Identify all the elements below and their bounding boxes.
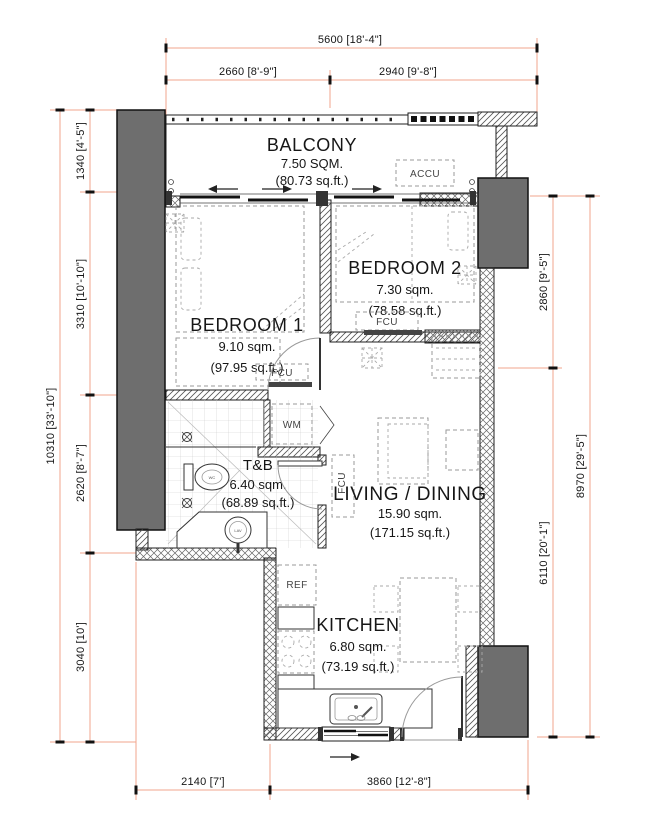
bedroom-1-bed [176, 206, 304, 332]
bedroom-2-area-sqft: (78.58 sq.ft.) [369, 303, 442, 318]
ceiling-unit-icon [362, 348, 382, 368]
bedroom-1: BEDROOM 1 9.10 sqm. (97.95 sq.ft.) FCU [166, 206, 320, 390]
bedroom-2-area-sqm: 7.30 sqm. [376, 282, 433, 297]
tb-area-sqm: 6.40 sqm. [229, 477, 286, 492]
balcony: ACCU BALCONY 7.50 SQM. (80.73 sq.ft.) [166, 113, 478, 207]
bedroom-partition-wall [320, 200, 331, 333]
kitchen-counter-upper [278, 607, 314, 629]
dim-right-2: 6110 [20'-1"] [538, 521, 550, 584]
slide-arrow-right-2 [352, 185, 382, 193]
fcu-bedroom-2-label: FCU [376, 317, 398, 328]
dim-top-right: 2940 [9'-8"] [379, 66, 437, 78]
dim-right-overall: 8970 [29'-5"] [575, 434, 587, 498]
living-title: LIVING / DINING [333, 484, 487, 505]
kitchen-title: KITCHEN [316, 615, 399, 635]
floor-plan-drawing: 5600 [18'-4"] 2660 [8'-9"] 2940 [9'-8"] … [0, 0, 664, 818]
balcony-area-sqft: (80.73 sq.ft.) [276, 173, 349, 188]
dim-left-4: 3040 [10'] [75, 622, 87, 672]
wc-label: WC [209, 475, 216, 480]
column-top-right [478, 178, 528, 268]
wm-label: WM [283, 420, 302, 431]
tb-south-wall [136, 548, 276, 560]
bifold-door [320, 406, 334, 444]
kitchen-area-sqft: (73.19 sq.ft.) [322, 659, 395, 674]
tb-north-wall [166, 390, 268, 400]
pillow [181, 218, 201, 260]
pillow [448, 212, 468, 250]
shower-head-icon [182, 498, 192, 508]
bedroom-1-title: BEDROOM 1 [190, 315, 303, 335]
water-closet: WC [184, 464, 229, 490]
bedroom-2: BEDROOM 2 7.30 sqm. (78.58 sq.ft.) FCU [336, 206, 476, 335]
ref-label: REF [286, 580, 307, 591]
living-area-sqft: (171.15 sq.ft.) [370, 525, 450, 540]
accu-label: ACCU [410, 169, 440, 180]
kitchen-area-sqm: 6.80 sqm. [329, 639, 386, 654]
dim-bottom-right: 3860 [12'-8"] [367, 776, 431, 788]
dim-left-overall: 10310 [33'-10"] [45, 388, 57, 465]
bedroom-2-title: BEDROOM 2 [348, 258, 461, 278]
dining-chair [374, 586, 398, 612]
right-exterior-wall [480, 268, 494, 646]
entry-arrow [330, 753, 360, 761]
side-chair [446, 430, 478, 470]
kitchen-sink [330, 694, 382, 724]
column-bottom-right [478, 646, 528, 737]
dim-left-2: 3310 [10'-10"] [75, 259, 87, 330]
shower-head-icon [182, 432, 192, 442]
balcony-title: BALCONY [267, 135, 357, 155]
dim-left-1: 1340 [4'-5"] [75, 122, 87, 180]
dim-left-3: 2620 [8'-7"] [75, 444, 87, 502]
slide-arrow-left [208, 185, 238, 193]
dim-top-left: 2660 [8'-9"] [219, 66, 277, 78]
fcu-sill [364, 330, 422, 335]
cooktop [278, 631, 314, 673]
floor-plan-canvas: 5600 [18'-4"] 2660 [8'-9"] 2940 [9'-8"] … [0, 0, 664, 818]
tb-area-sqft: (68.89 sq.ft.) [222, 495, 295, 510]
kitchen-west-wall [264, 558, 276, 740]
dim-top-overall: 5600 [18'-4"] [318, 34, 382, 46]
kitchen-window [318, 727, 394, 741]
shear-wall-left [117, 110, 165, 530]
dining-table [400, 578, 456, 662]
tb-title: T&B [243, 457, 273, 474]
kitchen: REF KITCHEN 6.80 sqm. (73.19 sq.ft.) [278, 565, 432, 728]
bedroom-1-area-sqm: 9.10 sqm. [218, 339, 275, 354]
south-wall [264, 728, 322, 740]
lav-label: LAV [234, 528, 242, 533]
pillow [181, 268, 201, 310]
dining-chair [458, 586, 482, 612]
dim-right-1: 2860 [9'-5"] [538, 253, 550, 311]
sofa [378, 418, 428, 484]
fcu-bedroom-1-label: FCU [271, 368, 293, 379]
living-area-sqm: 15.90 sqm. [378, 506, 442, 521]
dim-bottom-left: 2140 [7'] [181, 776, 225, 788]
fcu-sill [268, 382, 312, 387]
balcony-area-sqm: 7.50 SQM. [281, 156, 343, 171]
